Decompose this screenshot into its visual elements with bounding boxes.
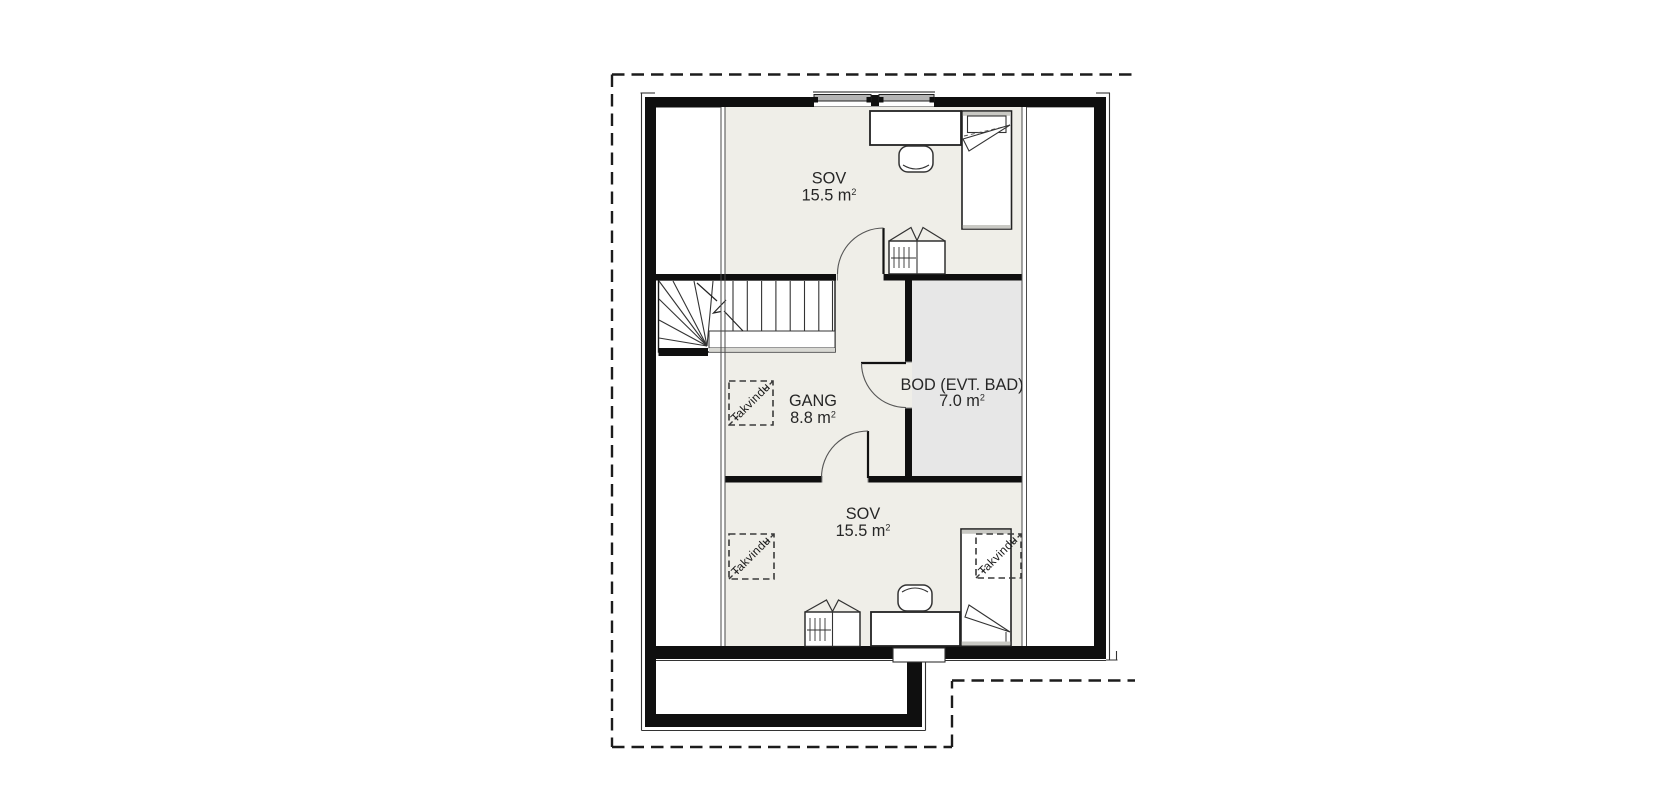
svg-text:SOV: SOV — [846, 505, 881, 523]
svg-text:8.8 m2: 8.8 m2 — [790, 409, 836, 427]
svg-text:15.5 m2: 15.5 m2 — [836, 522, 891, 540]
svg-text:7.0 m2: 7.0 m2 — [939, 392, 985, 410]
svg-text:SOV: SOV — [812, 170, 847, 188]
svg-text:GANG: GANG — [789, 392, 837, 410]
svg-text:15.5 m2: 15.5 m2 — [802, 187, 857, 205]
